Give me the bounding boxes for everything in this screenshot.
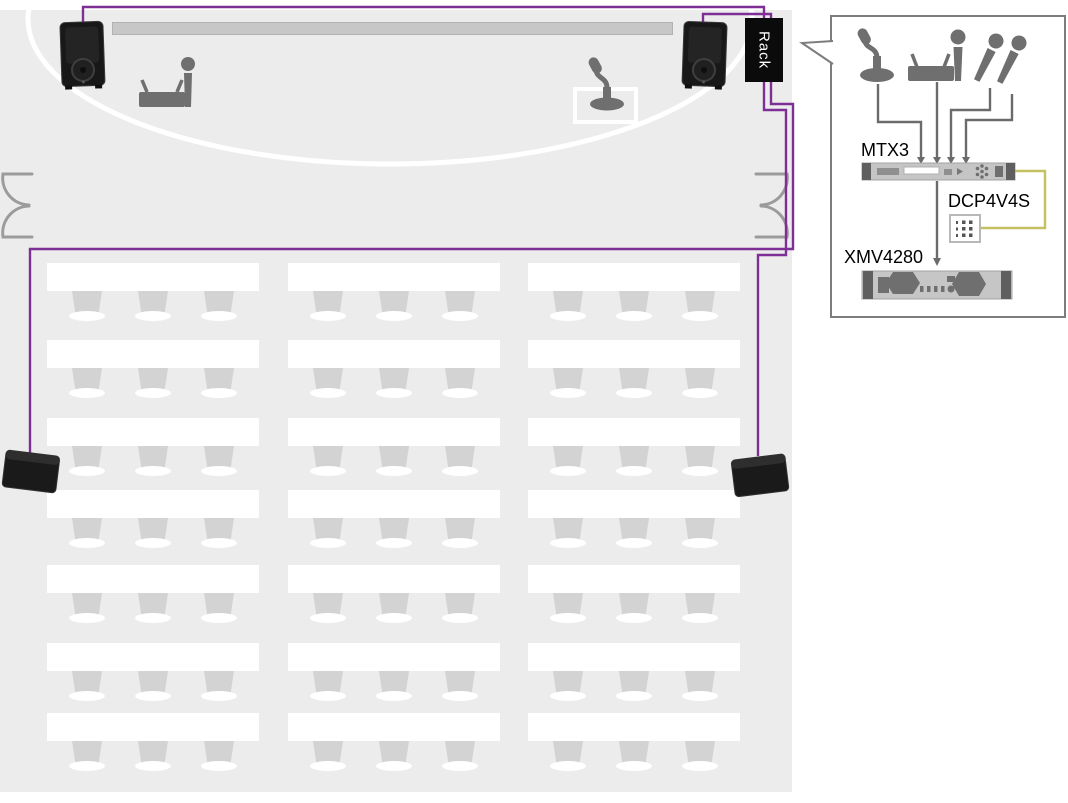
av-system-diagram: Rack MTX3 DCP4V4S XMV4280 (0, 0, 1068, 803)
xmv4280-label: XMV4280 (844, 248, 923, 266)
wireless-receiver-icon (908, 54, 954, 81)
callout-pointer (802, 41, 833, 64)
gooseneck-mic-icon (856, 27, 894, 82)
dcp4v4s-unit-icon (950, 215, 980, 242)
cable-wall-left-speaker (30, 50, 793, 453)
stage-edge-arc (28, 0, 752, 164)
xmv4280-unit-icon (862, 271, 1012, 299)
speaker-cables (30, 7, 793, 456)
wall-speaker-right-icon (731, 454, 789, 497)
gooseneck-mic-stage-icon (587, 56, 624, 111)
cable-wall-right-speaker (758, 50, 786, 456)
dcp4v4s-label: DCP4V4S (948, 192, 1030, 210)
double-door-right-icon (756, 174, 787, 237)
wireless-mic-set-icon (139, 57, 195, 107)
double-door-left-icon (3, 174, 32, 237)
stage-speaker-right-icon (682, 21, 727, 89)
mtx3-label: MTX3 (861, 141, 909, 159)
mtx3-unit-icon (862, 163, 1015, 180)
wall-speaker-left-icon (2, 450, 60, 493)
rack-label: Rack (745, 18, 783, 82)
stage-speaker-left-icon (60, 21, 105, 89)
diagram-graphics (0, 0, 1068, 803)
